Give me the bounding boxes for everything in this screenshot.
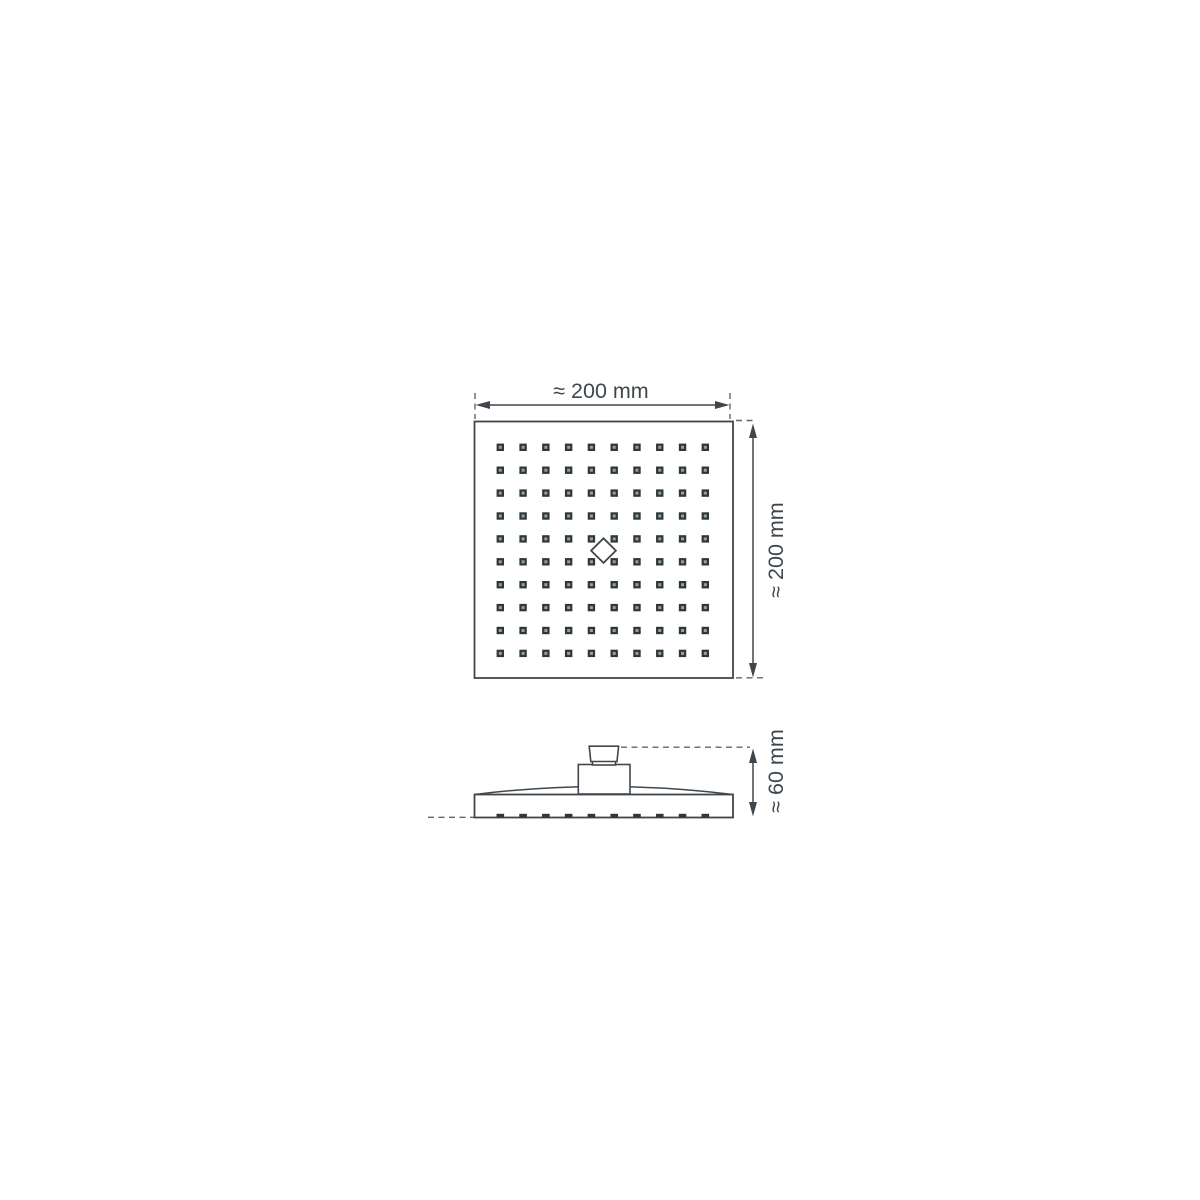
nozzle-center [499, 652, 502, 655]
nozzle-center [681, 446, 684, 449]
nozzle-center [681, 492, 684, 495]
connector-nut [589, 746, 618, 761]
nozzle-center [522, 606, 525, 609]
nozzle-center [681, 469, 684, 472]
nozzle-center [567, 652, 570, 655]
depth-dimension-label: ≈ 60 mm [764, 729, 788, 812]
nozzle-center [658, 583, 661, 586]
nozzle-center [658, 537, 661, 540]
nozzle-center [681, 560, 684, 563]
nozzle-center [544, 606, 547, 609]
nozzle-tick [610, 814, 618, 818]
nozzle-center [704, 537, 707, 540]
nozzle-center [544, 492, 547, 495]
nozzle-center [499, 583, 502, 586]
connector-base-block [578, 765, 630, 795]
nozzle-center [544, 652, 547, 655]
nozzle-center [499, 492, 502, 495]
nozzle-center [590, 537, 593, 540]
nozzle-center [567, 606, 570, 609]
nozzle-center [658, 469, 661, 472]
nozzle-center [499, 446, 502, 449]
nozzle-center [613, 652, 616, 655]
nozzle-center [635, 583, 638, 586]
nozzle-center [704, 606, 707, 609]
nozzle-center [590, 652, 593, 655]
nozzle-center [590, 560, 593, 563]
nozzle-center [635, 629, 638, 632]
nozzle-tick [656, 814, 664, 818]
nozzle-center [499, 515, 502, 518]
nozzle-center [613, 492, 616, 495]
nozzle-center [613, 537, 616, 540]
dimension-depth: ≈ 60 mm [749, 729, 788, 816]
nozzle-center [704, 492, 707, 495]
nozzle-center [544, 515, 547, 518]
nozzle-center [704, 515, 707, 518]
nozzle-center [613, 515, 616, 518]
nozzle-center [658, 446, 661, 449]
nozzle-center [567, 515, 570, 518]
nozzle-center [499, 469, 502, 472]
nozzle-center [544, 629, 547, 632]
nozzle-center [681, 606, 684, 609]
nozzle-center [544, 469, 547, 472]
dimension-width: ≈ 200 mm [475, 379, 730, 419]
nozzle-center [635, 515, 638, 518]
nozzle-center [522, 583, 525, 586]
nozzle-center [590, 583, 593, 586]
nozzle-center [635, 652, 638, 655]
nozzle-center [522, 560, 525, 563]
nozzle-center [567, 537, 570, 540]
nozzle-center [704, 469, 707, 472]
nozzle-tick [679, 814, 687, 818]
nozzle-center [590, 515, 593, 518]
arrowhead-up-icon [749, 424, 757, 439]
nozzle-center [590, 629, 593, 632]
nozzle-center [635, 560, 638, 563]
nozzle-center [635, 469, 638, 472]
nozzle-center [499, 606, 502, 609]
nozzle-center [635, 606, 638, 609]
nozzle-center [613, 606, 616, 609]
shower-plate-side-view [475, 795, 734, 818]
nozzle-center [704, 583, 707, 586]
arrowhead-down-icon [749, 802, 757, 817]
nozzle-center [658, 560, 661, 563]
nozzle-center [522, 492, 525, 495]
nozzle-center [522, 629, 525, 632]
nozzle-center [590, 606, 593, 609]
height-dimension-label: ≈ 200 mm [764, 502, 788, 597]
nozzle-center [522, 652, 525, 655]
side-view [428, 746, 750, 817]
nozzle-center [658, 606, 661, 609]
nozzle-center [681, 537, 684, 540]
nozzle-center [590, 446, 593, 449]
nozzle-center [567, 629, 570, 632]
nozzle-center [704, 629, 707, 632]
nozzle-center [499, 560, 502, 563]
nozzle-center [658, 492, 661, 495]
nozzle-center [522, 515, 525, 518]
width-dimension-label: ≈ 200 mm [553, 379, 648, 403]
nozzle-center [567, 492, 570, 495]
nozzle-center [658, 629, 661, 632]
nozzle-center [544, 583, 547, 586]
nozzle-center [499, 629, 502, 632]
nozzle-center [613, 629, 616, 632]
arrowhead-down-icon [749, 663, 757, 678]
nozzle-center [590, 492, 593, 495]
nozzle-center [544, 537, 547, 540]
nozzle-center [635, 492, 638, 495]
nozzle-tick [588, 814, 596, 818]
nozzle-center [658, 515, 661, 518]
nozzle-center [522, 446, 525, 449]
nozzle-tick [565, 814, 573, 818]
nozzle-center [681, 515, 684, 518]
nozzle-center [567, 560, 570, 563]
nozzle-center [704, 560, 707, 563]
nozzle-center [681, 652, 684, 655]
nozzle-center [590, 469, 593, 472]
nozzle-tick [702, 814, 710, 818]
arrowhead-right-icon [715, 401, 730, 409]
arrowhead-up-icon [749, 749, 757, 764]
nozzle-center [522, 537, 525, 540]
nozzle-center [567, 469, 570, 472]
nozzle-center [613, 560, 616, 563]
nozzle-center [499, 537, 502, 540]
nozzle-center [613, 446, 616, 449]
nozzle-center [658, 652, 661, 655]
nozzle-tick [542, 814, 550, 818]
nozzle-center [544, 446, 547, 449]
nozzle-center [613, 583, 616, 586]
nozzle-tick [633, 814, 641, 818]
technical-drawing-canvas: ≈ 200 mm ≈ 200 mm ≈ 60 mm [0, 0, 1200, 1200]
nozzle-center [635, 446, 638, 449]
shower-head-dimension-drawing: ≈ 200 mm ≈ 200 mm ≈ 60 mm [0, 0, 1200, 1200]
nozzle-tick [497, 814, 505, 818]
nozzle-center [681, 629, 684, 632]
top-view [475, 422, 734, 679]
nozzle-center [704, 446, 707, 449]
nozzle-center [635, 537, 638, 540]
nozzle-center [613, 469, 616, 472]
nozzle-tick [519, 814, 527, 818]
dimension-height: ≈ 200 mm [736, 421, 788, 678]
nozzle-center [567, 583, 570, 586]
nozzle-center [704, 652, 707, 655]
nozzle-center [544, 560, 547, 563]
nozzle-center [567, 446, 570, 449]
nozzle-center [681, 583, 684, 586]
arrowhead-left-icon [476, 401, 491, 409]
nozzle-center [522, 469, 525, 472]
